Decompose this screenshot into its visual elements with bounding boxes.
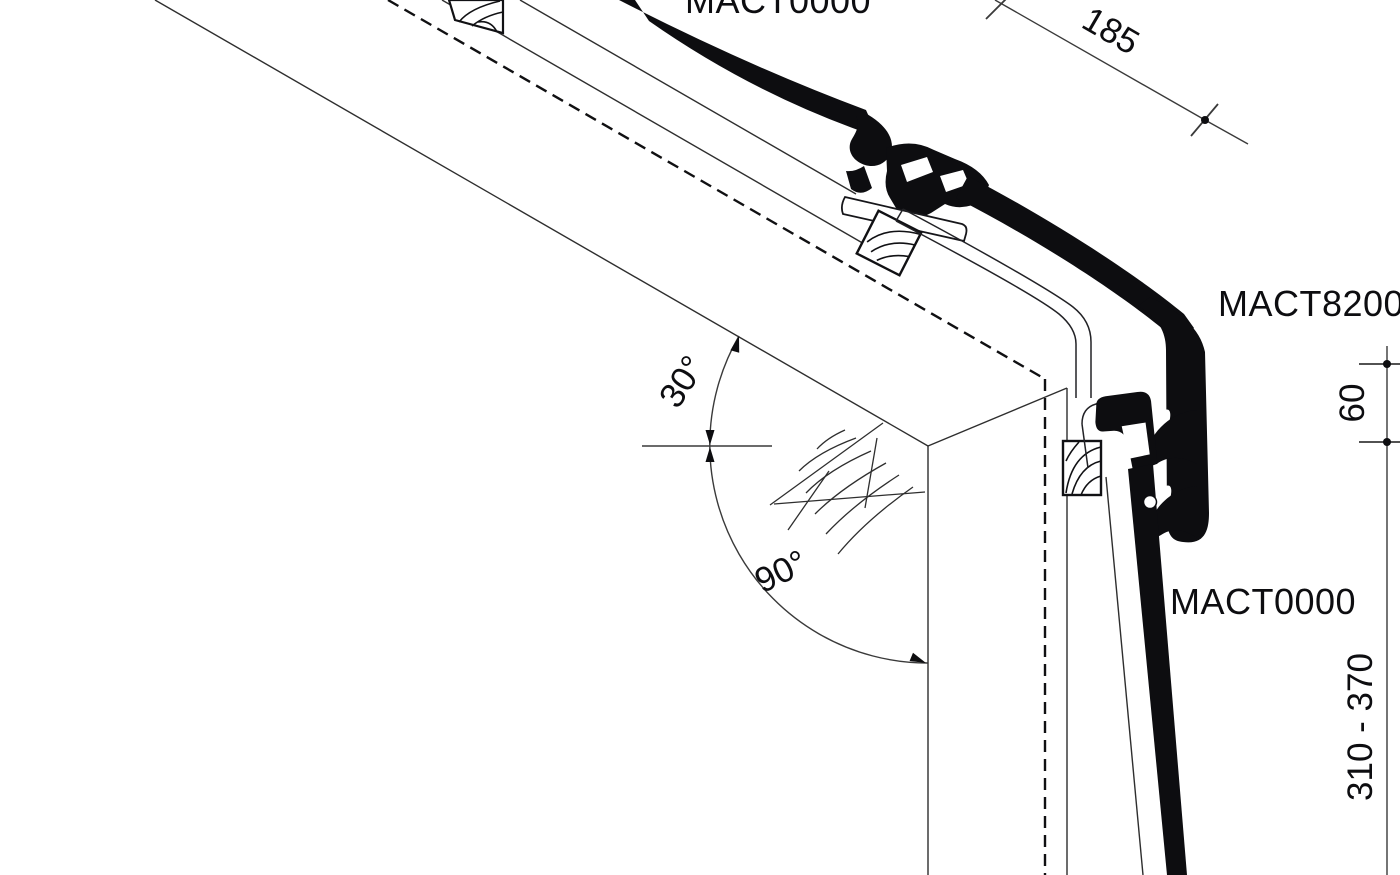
profile-label-top: MACT0000 xyxy=(685,0,871,21)
dim-185-label: 185 xyxy=(1076,0,1146,63)
rafter-end-grain-sketch xyxy=(770,423,925,554)
apron-profile-top xyxy=(619,0,989,218)
roof-layer-lines xyxy=(155,0,928,446)
sash-bracket xyxy=(1093,391,1157,472)
profile-label-side: MACT0000 xyxy=(1170,581,1356,622)
dim-185-dot xyxy=(1201,116,1209,124)
angle-arrowheads xyxy=(706,336,927,663)
dim-310-370-label: 310 - 370 xyxy=(1341,653,1380,801)
batten-right xyxy=(1063,441,1101,495)
apron-end-tab xyxy=(846,166,872,193)
profile-label-corner: MACT8200 xyxy=(1218,283,1400,324)
dim-60-label: 60 xyxy=(1333,384,1372,423)
dim-60-dot-bottom xyxy=(1383,438,1391,446)
angle-90-label: 90° xyxy=(749,543,814,601)
batten-top xyxy=(449,0,503,33)
sarking-line-1 xyxy=(442,0,866,245)
flashing-section-drawing: 30° 90° 185 60 310 - 370 MACT0000 MACT82… xyxy=(0,0,1400,875)
ceiling-line xyxy=(155,0,928,446)
vapour-barrier-dashed xyxy=(388,0,1045,875)
dim-60-dot-top xyxy=(1383,360,1391,368)
sash-screw-boss xyxy=(1144,496,1157,509)
angle-30-label: 30° xyxy=(652,349,714,415)
